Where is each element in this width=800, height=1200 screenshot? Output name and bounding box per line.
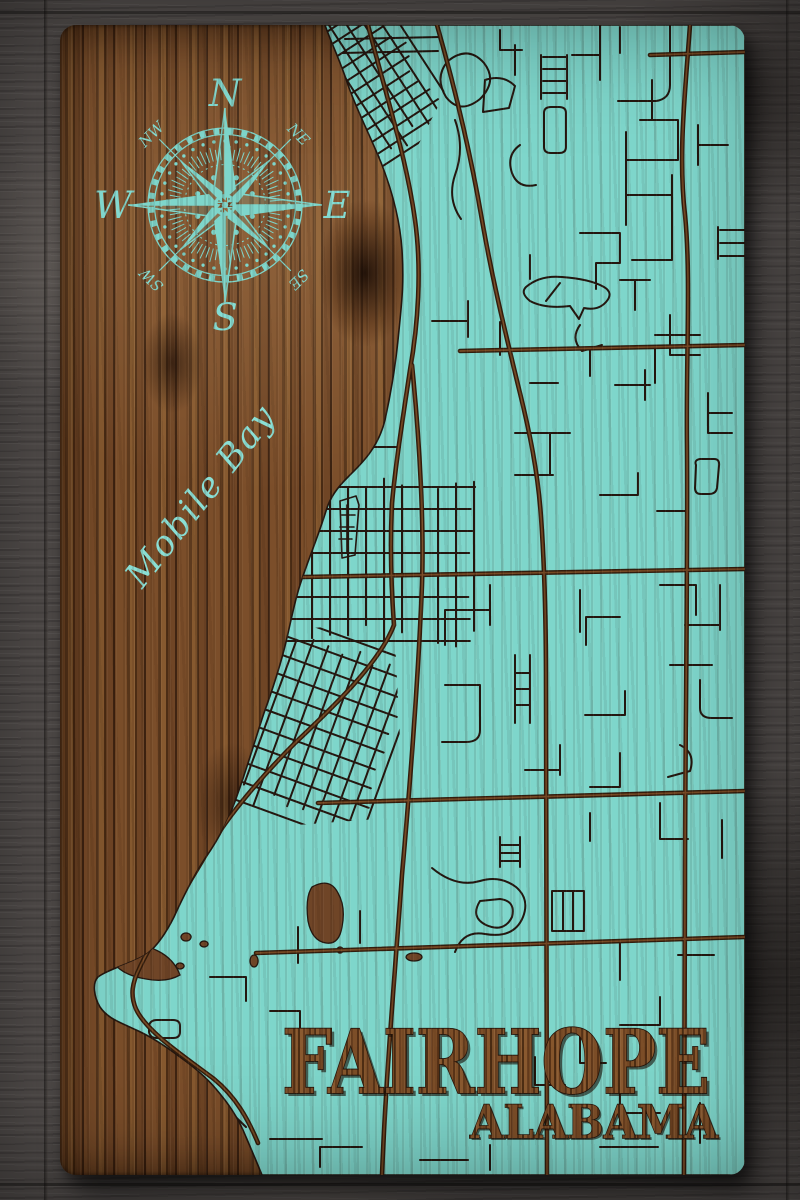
compass-point-south: [214, 211, 236, 302]
compass-tick: [266, 224, 279, 230]
compass-tick: [215, 249, 217, 260]
compass-dot: [264, 252, 267, 255]
compass-point-west: [128, 194, 219, 216]
plank-seam: [0, 1183, 800, 1186]
compass-label-south: S: [212, 296, 237, 339]
compass-point-north: [214, 108, 236, 199]
wood-map-board: N E S W NW NE SE SW Mobile Bay FAIRHOPE …: [60, 25, 745, 1175]
compass-dot: [279, 235, 282, 238]
compass-dot: [163, 225, 166, 228]
compass-tick: [170, 195, 181, 197]
compass-tick: [237, 248, 241, 262]
compass-dot: [272, 162, 275, 165]
compass-tick: [266, 180, 279, 186]
compass-tick: [168, 217, 182, 221]
compass-dot: [160, 192, 163, 195]
compass-dot: [168, 171, 171, 174]
compass-label-ne: NE: [283, 119, 313, 149]
compass-dot: [286, 214, 289, 217]
compass-tick: [210, 148, 214, 162]
compass-label-west: W: [94, 184, 135, 227]
map-engraving: N E S W NW NE SE SW Mobile Bay FAIRHOPE …: [60, 25, 745, 1175]
compass-dot: [234, 266, 237, 269]
compass-tick: [206, 247, 210, 257]
compass-tick: [244, 152, 250, 165]
compass-dot: [264, 154, 267, 157]
compass-label-north: N: [208, 72, 243, 115]
compass-tick: [267, 186, 277, 190]
compass-dot: [174, 162, 177, 165]
compass-tick: [197, 244, 203, 254]
compass-dot: [212, 266, 215, 269]
compass-dot: [286, 192, 289, 195]
plank-seam: [44, 0, 48, 1200]
compass-dot: [201, 263, 204, 266]
compass-label-se: SE: [285, 266, 313, 294]
compass-tick: [268, 217, 282, 221]
plank-seam: [786, 0, 790, 1200]
compass-dot: [163, 181, 166, 184]
compass-dot: [212, 140, 215, 143]
compass-tick: [210, 248, 214, 262]
compass-tick: [172, 224, 185, 230]
compass-dot: [191, 259, 194, 262]
compass-tick: [269, 213, 280, 215]
compass-tick: [267, 220, 277, 224]
compass-tick: [264, 177, 274, 183]
compass-rose: N E S W NW NE SE SW: [94, 72, 351, 339]
compass-dot: [168, 235, 171, 238]
compass-tick: [200, 152, 206, 165]
compass-label-east: E: [322, 184, 350, 227]
compass-tick: [170, 213, 181, 215]
compass-tick: [269, 195, 280, 197]
compass-tick: [215, 150, 217, 161]
state-title: ALABAMA: [469, 1095, 719, 1149]
compass-tick: [172, 186, 182, 190]
compass-tick: [244, 246, 250, 259]
compass-tick: [233, 150, 235, 161]
compass-tick: [248, 244, 254, 254]
compass-dot: [191, 148, 194, 151]
compass-tick: [264, 228, 274, 234]
photo-background: N E S W NW NE SE SW Mobile Bay FAIRHOPE …: [0, 0, 800, 1200]
compass-dot: [160, 214, 163, 217]
compass-tick: [206, 152, 210, 162]
compass-dot: [182, 154, 185, 157]
compass-tick: [172, 180, 185, 186]
compass-tick: [240, 152, 244, 162]
compass-tick: [248, 157, 254, 167]
compass-dot: [283, 181, 286, 184]
compass-tick: [197, 157, 203, 167]
compass-dot: [279, 171, 282, 174]
compass-dot: [234, 140, 237, 143]
compass-tick: [172, 220, 182, 224]
compass-tick: [200, 246, 206, 259]
compass-dot: [245, 143, 248, 146]
compass-label-nw: NW: [134, 117, 169, 152]
pond: [307, 883, 343, 943]
compass-tick: [177, 228, 187, 234]
compass-dot: [182, 252, 185, 255]
compass-dot: [255, 148, 258, 151]
compass-dot: [245, 263, 248, 266]
compass-dot: [283, 225, 286, 228]
compass-dot: [272, 244, 275, 247]
compass-dot: [174, 244, 177, 247]
compass-tick: [240, 247, 244, 257]
compass-tick: [168, 190, 182, 194]
water-body-label: Mobile Bay: [117, 397, 285, 596]
compass-tick: [268, 190, 282, 194]
compass-tick: [233, 249, 235, 260]
compass-tick: [177, 177, 187, 183]
compass-dot: [255, 259, 258, 262]
plank-seam: [0, 11, 800, 14]
compass-tick: [237, 148, 241, 162]
compass-point-east: [231, 194, 322, 216]
compass-dot: [201, 143, 204, 146]
